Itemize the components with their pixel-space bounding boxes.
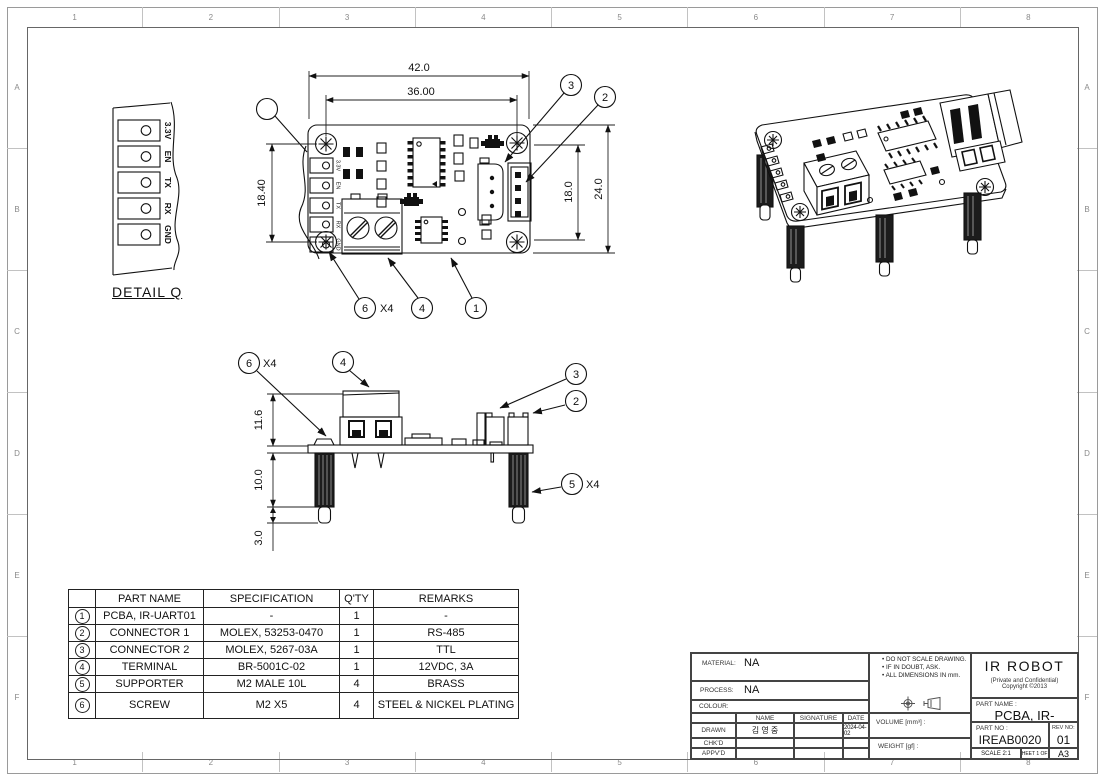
svg-text:1: 1 xyxy=(473,303,479,315)
note: ALL DIMENSIONS IN mm. xyxy=(882,672,970,680)
bom-row: 5 SUPPORTER M2 MALE 10L 4 BRASS xyxy=(69,676,519,693)
svg-text:6: 6 xyxy=(246,358,252,370)
row-label: A xyxy=(1077,27,1097,148)
row-label: E xyxy=(7,514,27,636)
pad-label-rx: RX xyxy=(335,221,341,229)
svg-text:18.40: 18.40 xyxy=(256,179,268,207)
size-cell: A3 xyxy=(1049,748,1078,759)
row-ruler-left: A B C D E F xyxy=(7,27,27,758)
rev-no-label: REV NO: xyxy=(1052,725,1075,731)
material-label: MATERIAL: xyxy=(702,660,736,667)
terminal-block-side xyxy=(340,391,402,445)
svg-text:3: 3 xyxy=(573,369,579,381)
bom-part-name: CONNECTOR 1 xyxy=(96,625,204,642)
bom-spec: MOLEX, 5267-03A xyxy=(204,642,340,659)
process-label: PROCESS: xyxy=(700,687,734,694)
chkd-signature-cell xyxy=(794,738,843,748)
item-balloon: 3 xyxy=(75,643,90,658)
side-view: 11.6 10.0 3.0 6 X4 4 3 xyxy=(215,340,635,565)
appvd-label: APPV'D xyxy=(691,748,736,759)
qty-x4-screws-side: X4 xyxy=(263,358,276,370)
balloon-4: 4 xyxy=(388,258,433,319)
connector-rs485-side xyxy=(508,413,528,445)
svg-text:3: 3 xyxy=(568,80,574,92)
column-ruler-top: 1 2 3 4 5 6 7 8 xyxy=(7,7,1096,27)
svg-text:2: 2 xyxy=(573,396,579,408)
note: IF IN DOUBT, ASK. xyxy=(882,664,970,672)
sign-date-header: DATE xyxy=(843,713,869,723)
bom-header-spec: SPECIFICATION xyxy=(204,590,340,608)
bom-remarks: - xyxy=(374,608,519,625)
appvd-date-cell xyxy=(843,748,869,759)
svg-text:11.6: 11.6 xyxy=(253,410,265,431)
row-label: E xyxy=(1077,514,1097,636)
row-label: B xyxy=(7,148,27,270)
colour-label: COLOUR: xyxy=(699,703,729,710)
note: DO NOT SCALE DRAWING. xyxy=(882,656,970,664)
bom-row: 6 SCREW M2 X5 4 STEEL & NICKEL PLATING xyxy=(69,693,519,719)
drawn-signature-cell xyxy=(794,723,843,738)
sign-name-header: NAME xyxy=(736,713,794,723)
bom-qty: 1 xyxy=(340,642,374,659)
svg-text:3.0: 3.0 xyxy=(253,530,265,545)
sheet-cell: SHEET 1 OF 1 xyxy=(1021,748,1049,759)
notes-cell: DO NOT SCALE DRAWING. IF IN DOUBT, ASK. … xyxy=(869,653,971,713)
bom-spec: M2 MALE 10L xyxy=(204,676,340,693)
pad-label-tx: TX xyxy=(335,202,341,209)
svg-text:18.0: 18.0 xyxy=(563,181,575,202)
weight-label: WEIGHT [gf] : xyxy=(878,743,918,750)
part-no-cell: PART NO : IREAB0020 xyxy=(971,722,1049,748)
column-label: 1 xyxy=(7,7,142,27)
bom-row: 2 CONNECTOR 1 MOLEX, 53253-0470 1 RS-485 xyxy=(69,625,519,642)
bom-row: 3 CONNECTOR 2 MOLEX, 5267-03A 1 TTL xyxy=(69,642,519,659)
chkd-date-cell xyxy=(843,738,869,748)
part-no-label: PART NO : xyxy=(976,725,1008,732)
svg-text:24.0: 24.0 xyxy=(593,178,605,199)
process-cell: PROCESS: NA xyxy=(691,681,869,700)
svg-text:4: 4 xyxy=(340,357,346,369)
chkd-label: CHK'D xyxy=(691,738,736,748)
volume-label: VOLUME [mm³] : xyxy=(876,719,925,726)
pin-label-tx: TX xyxy=(163,177,173,188)
row-label: D xyxy=(1077,392,1097,514)
bom-part-name: TERMINAL xyxy=(96,659,204,676)
bom-qty: 1 xyxy=(340,608,374,625)
bom-row: 1 PCBA, IR-UART01 - 1 - xyxy=(69,608,519,625)
pad-label-en: EN xyxy=(335,182,341,190)
pad-label-3v3: 3.3V xyxy=(335,160,341,172)
pad-label-gnd: GND xyxy=(335,238,341,250)
row-label: B xyxy=(1077,148,1097,270)
chkd-name-cell xyxy=(736,738,794,748)
column-label: 5 xyxy=(551,7,687,27)
company-name: IR ROBOT xyxy=(972,658,1077,674)
pin-label-gnd: GND xyxy=(163,225,173,244)
bom-remarks: STEEL & NICKEL PLATING xyxy=(374,693,519,719)
bom-header-row: PART NAME SPECIFICATION Q'TY REMARKS xyxy=(69,590,519,608)
bom-qty: 1 xyxy=(340,659,374,676)
supporter-left xyxy=(315,453,334,523)
dim-10: 10.0 xyxy=(253,453,315,507)
column-label: 4 xyxy=(415,7,551,27)
scale-cell: SCALE 2:1 xyxy=(971,748,1021,759)
slide-switch-mid xyxy=(400,193,423,206)
part-name-label: PART NAME : xyxy=(976,701,1017,708)
bom-part-name: CONNECTOR 2 xyxy=(96,642,204,659)
colour-cell: COLOUR: xyxy=(691,700,869,713)
side-components xyxy=(405,434,502,445)
bom-qty: 4 xyxy=(340,676,374,693)
item-balloon: 6 xyxy=(75,698,90,713)
material-value: NA xyxy=(744,657,759,669)
bom-header-qty: Q'TY xyxy=(340,590,374,608)
sign-corner-cell xyxy=(691,713,736,723)
isometric-view xyxy=(735,80,1035,295)
part-no-value: IREAB0020 xyxy=(972,733,1048,747)
balloon-3: 3 xyxy=(505,75,582,163)
detail-q-view: 3.3V EN TX RX GND xyxy=(90,90,230,305)
rev-no-value: 01 xyxy=(1050,733,1077,747)
row-label: C xyxy=(1077,270,1097,392)
ic-14pin xyxy=(408,138,446,187)
drawing-sheet: 1 2 3 4 5 6 7 8 1 2 3 4 5 6 7 8 A B C D … xyxy=(0,0,1105,776)
drawn-date: 2024-04-02 xyxy=(843,723,869,738)
pcb-side xyxy=(308,445,533,453)
supporter-right xyxy=(509,453,528,523)
part-name-value: PCBA, IR-UART01 xyxy=(972,708,1077,722)
bom-spec: - xyxy=(204,608,340,625)
bom-part-name: SUPPORTER xyxy=(96,676,204,693)
svg-text:4: 4 xyxy=(419,303,425,315)
row-label: D xyxy=(7,392,27,514)
balloon-2: 2 xyxy=(526,87,616,183)
material-cell: MATERIAL: NA xyxy=(691,653,869,681)
bom-remarks: 12VDC, 3A xyxy=(374,659,519,676)
column-label: 8 xyxy=(960,7,1096,27)
qty-x4-supporters: X4 xyxy=(586,479,599,491)
drawn-name: 김 영 중 xyxy=(736,723,794,738)
bom-remarks: RS-485 xyxy=(374,625,519,642)
row-label: C xyxy=(7,270,27,392)
bom-spec: M2 X5 xyxy=(204,693,340,719)
item-balloon: 4 xyxy=(75,660,90,675)
title-block: MATERIAL: NA PROCESS: NA COLOUR: NAME SI… xyxy=(690,652,1079,760)
column-label: 6 xyxy=(687,7,823,27)
row-label: F xyxy=(1077,636,1097,758)
svg-text:6: 6 xyxy=(362,303,368,315)
dim-3: 3.0 xyxy=(253,507,318,551)
svg-text:5: 5 xyxy=(569,479,575,491)
appvd-name-cell xyxy=(736,748,794,759)
appvd-signature-cell xyxy=(794,748,843,759)
svg-text:36.00: 36.00 xyxy=(407,86,435,98)
dim-18: 18.0 xyxy=(534,145,585,240)
svg-text:2: 2 xyxy=(602,92,608,104)
bom-table: PART NAME SPECIFICATION Q'TY REMARKS 1 P… xyxy=(68,589,519,719)
pin-label-en: EN xyxy=(163,151,173,163)
ic-8pin xyxy=(415,217,448,243)
bom-remarks: TTL xyxy=(374,642,519,659)
third-angle-projection-icon xyxy=(900,696,944,711)
column-label: 2 xyxy=(142,7,278,27)
row-label: F xyxy=(7,636,27,758)
item-balloon: 5 xyxy=(75,677,90,692)
company-cell: IR ROBOT (Private and Confidential) Copy… xyxy=(971,653,1078,698)
terminal-block-top xyxy=(342,194,402,254)
svg-text:42.0: 42.0 xyxy=(408,62,429,74)
bom-remarks: BRASS xyxy=(374,676,519,693)
svg-text:10.0: 10.0 xyxy=(253,469,265,490)
smd-parts-dark xyxy=(343,147,521,217)
row-label: A xyxy=(7,27,27,148)
iso-terminal-block xyxy=(804,151,869,215)
copyright-note: Copyright ©2013 xyxy=(972,684,1077,690)
dim-11-6: 11.6 xyxy=(253,394,343,446)
pin-label-3v3: 3.3V xyxy=(163,122,173,140)
balloon-1: 1 xyxy=(451,258,487,319)
drawn-label: DRAWN xyxy=(691,723,736,738)
dim-36: 36.00 xyxy=(326,86,517,136)
bom-row: 4 TERMINAL BR-5001C-02 1 12VDC, 3A xyxy=(69,659,519,676)
item-balloon: 1 xyxy=(75,609,90,624)
balloon-6: 6 X4 xyxy=(329,252,393,319)
qty-x4-screws: X4 xyxy=(380,303,393,315)
through-hole-pins xyxy=(352,453,494,468)
balloon-5-side: 5 X4 xyxy=(532,474,599,495)
pin-label-rx: RX xyxy=(163,203,173,215)
volume-cell: VOLUME [mm³] : xyxy=(869,713,971,738)
sign-signature-header: SIGNATURE xyxy=(794,713,843,723)
bom-part-name: SCREW xyxy=(96,693,204,719)
bom-header-part-name: PART NAME xyxy=(96,590,204,608)
balloon-4-side: 4 xyxy=(333,352,370,388)
rev-no-cell: REV NO: 01 xyxy=(1049,722,1078,748)
detail-q-pads xyxy=(118,120,160,245)
bom-header-no xyxy=(69,590,96,608)
bom-spec: MOLEX, 53253-0470 xyxy=(204,625,340,642)
part-name-cell: PART NAME : PCBA, IR-UART01 xyxy=(971,698,1078,722)
bom-spec: BR-5001C-02 xyxy=(204,659,340,676)
bom-part-name: PCBA, IR-UART01 xyxy=(96,608,204,625)
bom-qty: 4 xyxy=(340,693,374,719)
column-label: 7 xyxy=(824,7,960,27)
item-balloon: 2 xyxy=(75,626,90,641)
smd-parts-outline xyxy=(377,135,491,245)
top-view: 3.3V EN TX RX GND xyxy=(250,40,640,325)
balloon-2-side: 2 xyxy=(533,391,587,414)
bom-qty: 1 xyxy=(340,625,374,642)
process-value: NA xyxy=(744,684,759,696)
slide-switch-top xyxy=(481,135,504,148)
weight-cell: WEIGHT [gf] : xyxy=(869,738,971,759)
screw-head-side xyxy=(314,439,334,445)
column-label: 3 xyxy=(279,7,415,27)
row-ruler-right: A B C D E F xyxy=(1077,27,1097,758)
detail-q-title: DETAIL Q xyxy=(112,284,182,300)
bom-header-remarks: REMARKS xyxy=(374,590,519,608)
